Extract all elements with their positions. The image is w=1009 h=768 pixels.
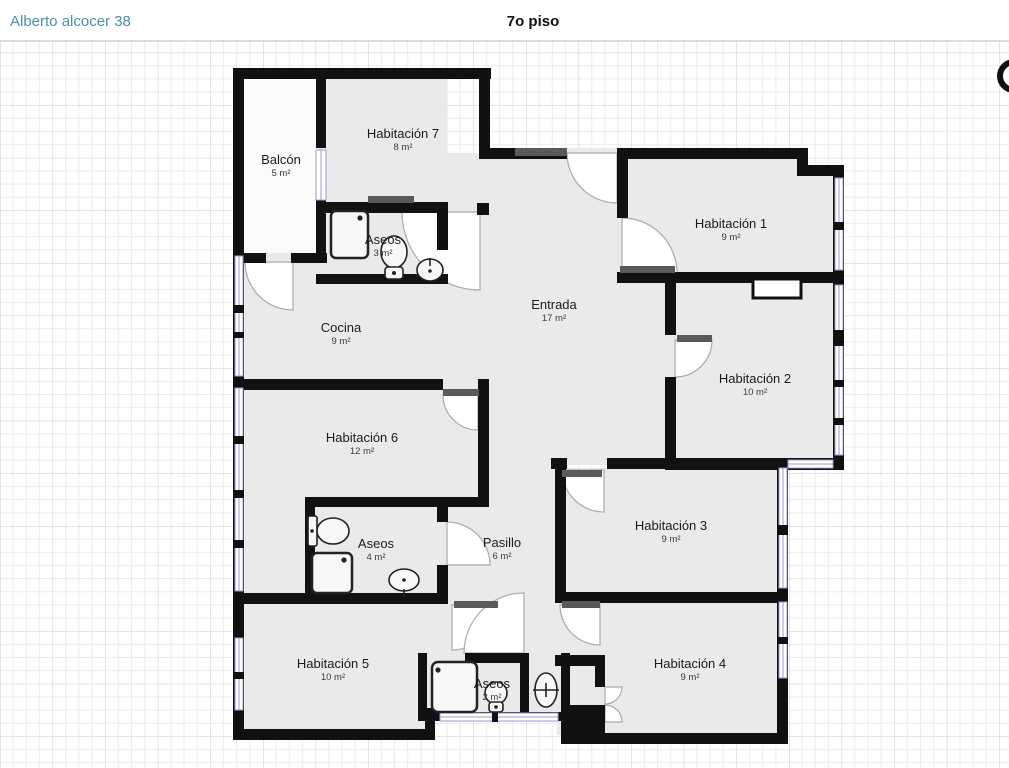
- door-leaf: [562, 470, 602, 477]
- sink-icon[interactable]: [417, 258, 443, 281]
- floor-plan-canvas[interactable]: [0, 0, 1009, 768]
- floor-title: 7o piso: [507, 13, 560, 30]
- room-label-aseos-2[interactable]: Aseos 2 m²: [474, 676, 510, 704]
- room-name: Aseos: [365, 232, 401, 248]
- room-name: Habitación 5: [297, 656, 369, 672]
- room-area: 5 m²: [261, 168, 301, 180]
- project-title: Alberto alcocer 38: [10, 13, 131, 30]
- room-label-balcon[interactable]: Balcón 5 m²: [261, 152, 301, 180]
- room-name: Habitación 3: [635, 518, 707, 534]
- floorplanner-app: Alberto alcocer 38 7o piso Balcón 5 m² H…: [0, 0, 1009, 768]
- room-area: 10 m²: [719, 387, 791, 399]
- room-area: 12 m²: [326, 446, 398, 458]
- room-label-habitacion-2[interactable]: Habitación 2 10 m²: [719, 371, 791, 399]
- room-label-entrada[interactable]: Entrada 17 m²: [531, 297, 577, 325]
- closet[interactable]: [753, 279, 801, 298]
- shower-icon[interactable]: [312, 553, 352, 593]
- door-leaf: [443, 389, 479, 396]
- shower-icon[interactable]: [331, 211, 368, 258]
- room-label-aseos-4[interactable]: Aseos 4 m²: [358, 536, 394, 564]
- room-area: 9 m²: [635, 534, 707, 546]
- room-name: Aseos: [474, 676, 510, 692]
- room-area: 10 m²: [297, 672, 369, 684]
- room-label-habitacion-5[interactable]: Habitación 5 10 m²: [297, 656, 369, 684]
- room-area: 2 m²: [474, 692, 510, 704]
- room-area: 17 m²: [531, 313, 577, 325]
- door-leaf: [454, 601, 498, 608]
- room-area: 6 m²: [483, 551, 521, 563]
- shower-icon[interactable]: [432, 662, 477, 712]
- room-label-habitacion-1[interactable]: Habitación 1 9 m²: [695, 216, 767, 244]
- room-name: Entrada: [531, 297, 577, 313]
- room-floors: [241, 77, 838, 735]
- door-leaf: [368, 196, 414, 203]
- compass-icon: [1000, 62, 1009, 90]
- door-leaf: [562, 601, 600, 608]
- room-label-cocina[interactable]: Cocina 9 m²: [321, 320, 361, 348]
- room-label-habitacion-6[interactable]: Habitación 6 12 m²: [326, 430, 398, 458]
- room-name: Balcón: [261, 152, 301, 168]
- room-area: 4 m²: [358, 552, 394, 564]
- room-name: Habitación 1: [695, 216, 767, 232]
- door-leaf: [677, 335, 712, 342]
- room-name: Habitación 2: [719, 371, 791, 387]
- room-area: 8 m²: [367, 142, 439, 154]
- room-label-habitacion-7[interactable]: Habitación 7 8 m²: [367, 126, 439, 154]
- room-area: 9 m²: [695, 232, 767, 244]
- toilet-icon[interactable]: [308, 516, 349, 546]
- room-name: Pasillo: [483, 535, 521, 551]
- door-leaf: [620, 266, 675, 273]
- room-name: Habitación 7: [367, 126, 439, 142]
- room-label-pasillo[interactable]: Pasillo 6 m²: [483, 535, 521, 563]
- room-name: Habitación 6: [326, 430, 398, 446]
- room-label-habitacion-3[interactable]: Habitación 3 9 m²: [635, 518, 707, 546]
- room-area: 9 m²: [654, 672, 726, 684]
- room-area: 9 m²: [321, 336, 361, 348]
- room-area: 3 m²: [365, 248, 401, 260]
- room-name: Cocina: [321, 320, 361, 336]
- room-label-habitacion-4[interactable]: Habitación 4 9 m²: [654, 656, 726, 684]
- door-leaf: [515, 148, 567, 156]
- room-name: Aseos: [358, 536, 394, 552]
- room-name: Habitación 4: [654, 656, 726, 672]
- room-label-aseos-3[interactable]: Aseos 3 m²: [365, 232, 401, 260]
